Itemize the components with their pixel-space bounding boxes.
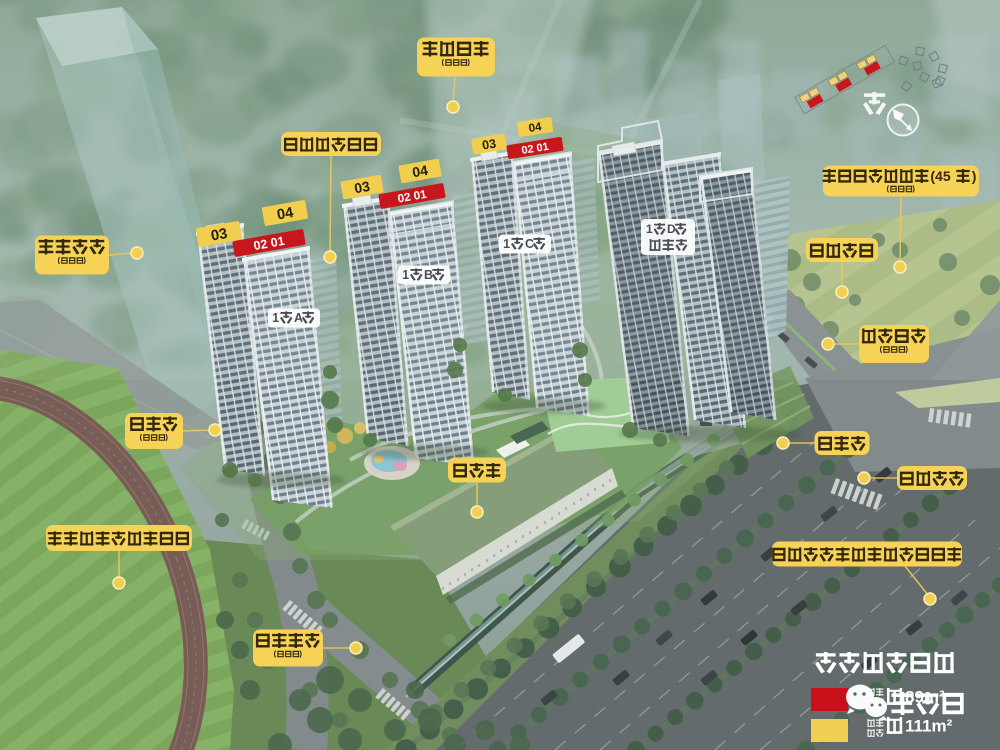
svg-text:04: 04 (411, 162, 429, 180)
svg-text:(45: (45 (930, 168, 950, 184)
svg-text:C: C (525, 237, 534, 251)
svg-text:A: A (294, 311, 303, 325)
svg-text:1: 1 (503, 237, 510, 251)
svg-text:): ) (972, 168, 977, 184)
svg-text:B: B (424, 268, 433, 282)
svg-text:111m²: 111m² (905, 716, 953, 735)
svg-text:1: 1 (272, 311, 279, 325)
svg-text:1: 1 (646, 222, 653, 236)
svg-text:1: 1 (402, 268, 409, 282)
svg-text:04: 04 (528, 120, 543, 135)
svg-text:03: 03 (353, 178, 371, 196)
svg-text:03: 03 (210, 226, 229, 245)
svg-text:03: 03 (481, 136, 497, 152)
svg-text:D: D (667, 222, 676, 236)
